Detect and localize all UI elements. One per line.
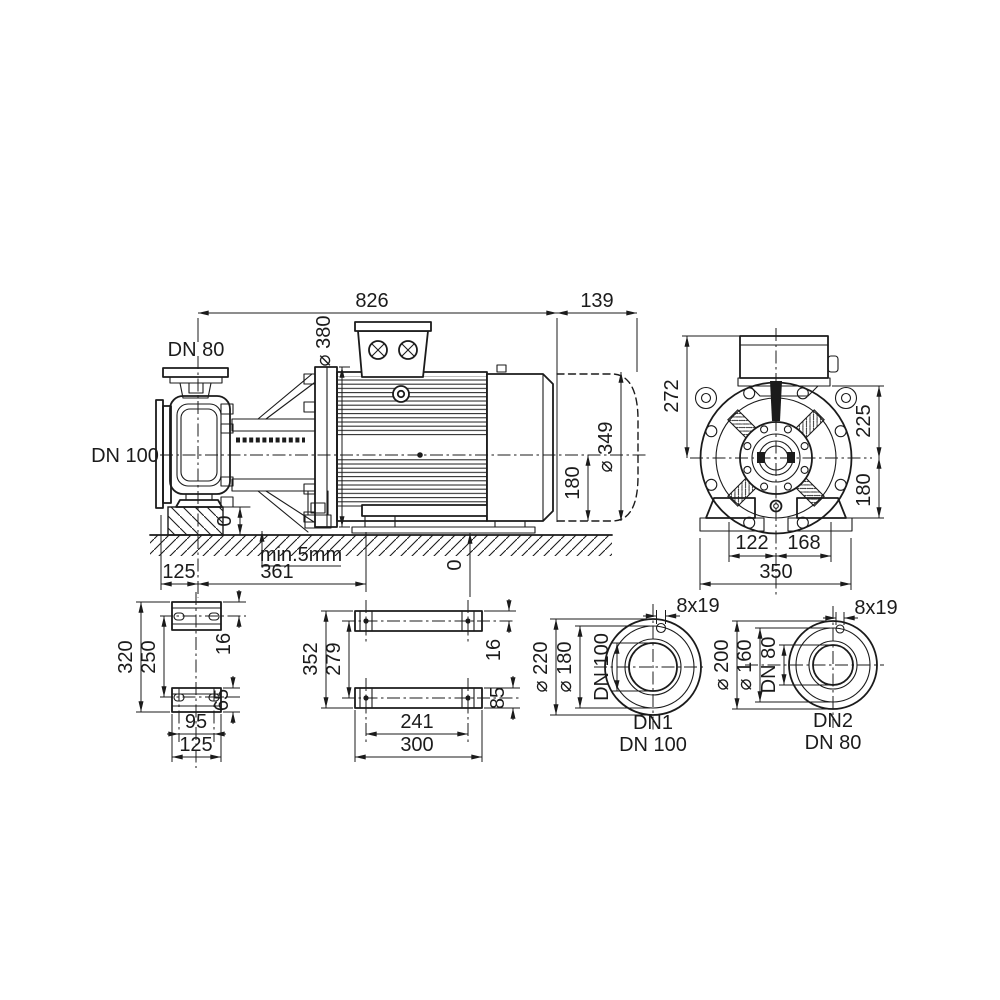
terminal-box-screw-right [399,341,417,359]
pump-feet-plan: 320 250 16 65 95 125 [115,590,246,768]
label-dn2-size: DN 80 [805,732,862,754]
dim-foot-right: 168 [787,532,820,554]
dim-motor-feet-hole-spacing: 279 [323,642,345,675]
dim-suction-offset: 125 [162,561,195,583]
pump-volute [156,368,233,508]
label-discharge-port: DN 80 [168,339,225,361]
dim-motor-dia: ⌀ 349 [595,422,617,473]
ground [150,535,612,556]
drawing-canvas: 826 139 DN 80 ⌀ 380 DN 100 ⌀ 349 180 0 [0,0,1000,1000]
dim-motor-feet-pad-width: 85 [487,687,509,709]
discharge-flange [163,368,228,398]
dim-stool-flange-dia: ⌀ 380 [313,316,335,367]
dim-feet-width-total: 125 [179,734,212,756]
dim-foot-left: 122 [735,532,768,554]
dim-dn2-bolt-circle: ⌀ 160 [734,640,756,691]
dim-motor-feet-length-total: 352 [300,642,322,675]
foundation-block [168,507,250,535]
label-suction-port: DN 100 [91,445,159,467]
dim-feet-length-total: 320 [115,640,137,673]
dim-height-above-axis: 272 [661,379,683,412]
dim-dn2-outer-dia: ⌀ 200 [711,640,733,691]
dim-zero-right: 0 [444,559,466,570]
label-dn1-size: DN 100 [619,734,687,756]
dim-dn1-bore: DN 100 [591,633,613,701]
dim-axis-height-side: 180 [562,466,584,499]
dim-foot-distance: 361 [260,561,293,583]
motor-fins-lower [338,458,486,508]
dim-overall-width: 350 [759,561,792,583]
flange-dn2-dimensions: 8x19 ⌀ 200 ⌀ 160 DN 80 [711,597,898,709]
pump-pedestal [176,494,222,507]
dim-zero-left: 0 [214,515,236,526]
dim-fan-clearance: 139 [580,290,613,312]
dim-dn1-outer-dia: ⌀ 220 [530,642,552,693]
fan-cover [487,365,553,521]
pump-feet-dimensions: 320 250 16 65 95 125 [115,590,246,762]
bearing-bracket [232,374,331,532]
dim-box-to-axis: 225 [853,404,875,437]
dim-dn2-bolt-holes: 8x19 [854,597,897,619]
label-dn1: DN1 [633,712,673,734]
lifting-eye-left [696,388,717,409]
lifting-eye-icon [393,386,409,402]
dim-feet-pad-length: 65 [211,689,233,711]
dim-axis-height-end: 180 [853,473,875,506]
dim-motor-feet-edge-to-hole: 16 [483,639,505,661]
dim-feet-edge-to-hole: 16 [213,633,235,655]
dim-motor-feet-width-total: 300 [400,734,433,756]
dim-feet-hole-spacing: 250 [138,640,160,673]
motor-fins-upper [338,376,486,438]
side-view: 826 139 DN 80 ⌀ 380 DN 100 ⌀ 349 180 0 [91,290,648,598]
dim-feet-hole-width: 95 [185,711,207,733]
pump-dimension-drawing: 826 139 DN 80 ⌀ 380 DN 100 ⌀ 349 180 0 [0,0,1000,1000]
motor-feet-plan: 352 279 16 85 241 300 [300,599,520,762]
label-dn2: DN2 [813,710,853,732]
terminal-box-screw-left [369,341,387,359]
dim-dn1-bolt-circle: ⌀ 180 [554,642,576,693]
flange-dn1: 8x19 ⌀ 220 ⌀ 180 DN 100 DN1 DN 100 [530,595,720,756]
end-view: 272 225 180 122 168 350 [661,328,884,596]
motor-feet-dimensions: 352 279 16 85 241 300 [300,599,520,762]
flange-dn2: 8x19 ⌀ 200 ⌀ 160 DN 80 DN2 DN 80 [711,597,898,754]
terminal-box [355,322,431,377]
dim-motor-feet-hole-span: 241 [400,711,433,733]
dim-dn1-bolt-holes: 8x19 [676,595,719,617]
dim-dn2-bore: DN 80 [758,637,780,694]
dim-total-length: 826 [355,290,388,312]
